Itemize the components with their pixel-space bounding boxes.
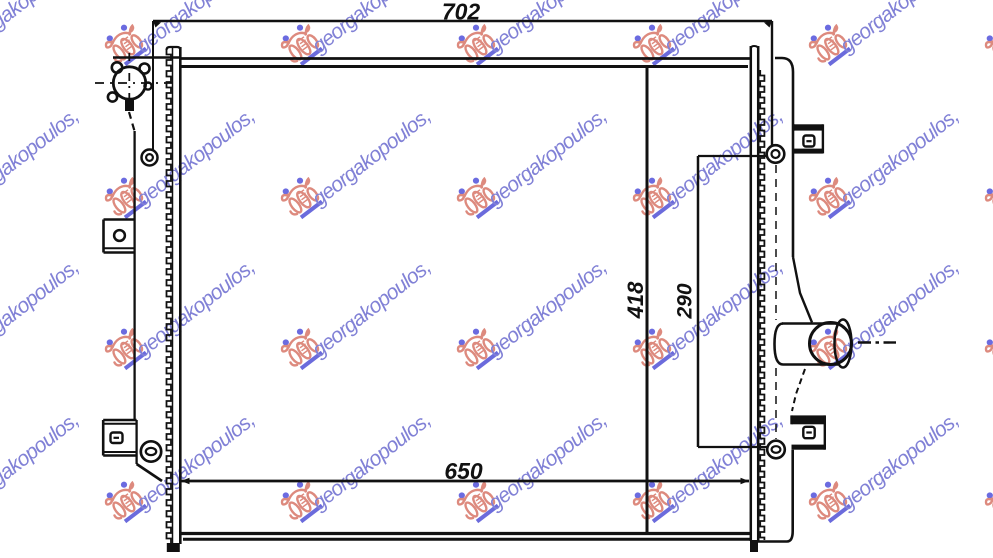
svg-text:418: 418: [623, 281, 648, 319]
svg-text:290: 290: [674, 283, 697, 319]
svg-text:702: 702: [442, 0, 481, 25]
svg-text:650: 650: [444, 458, 483, 484]
